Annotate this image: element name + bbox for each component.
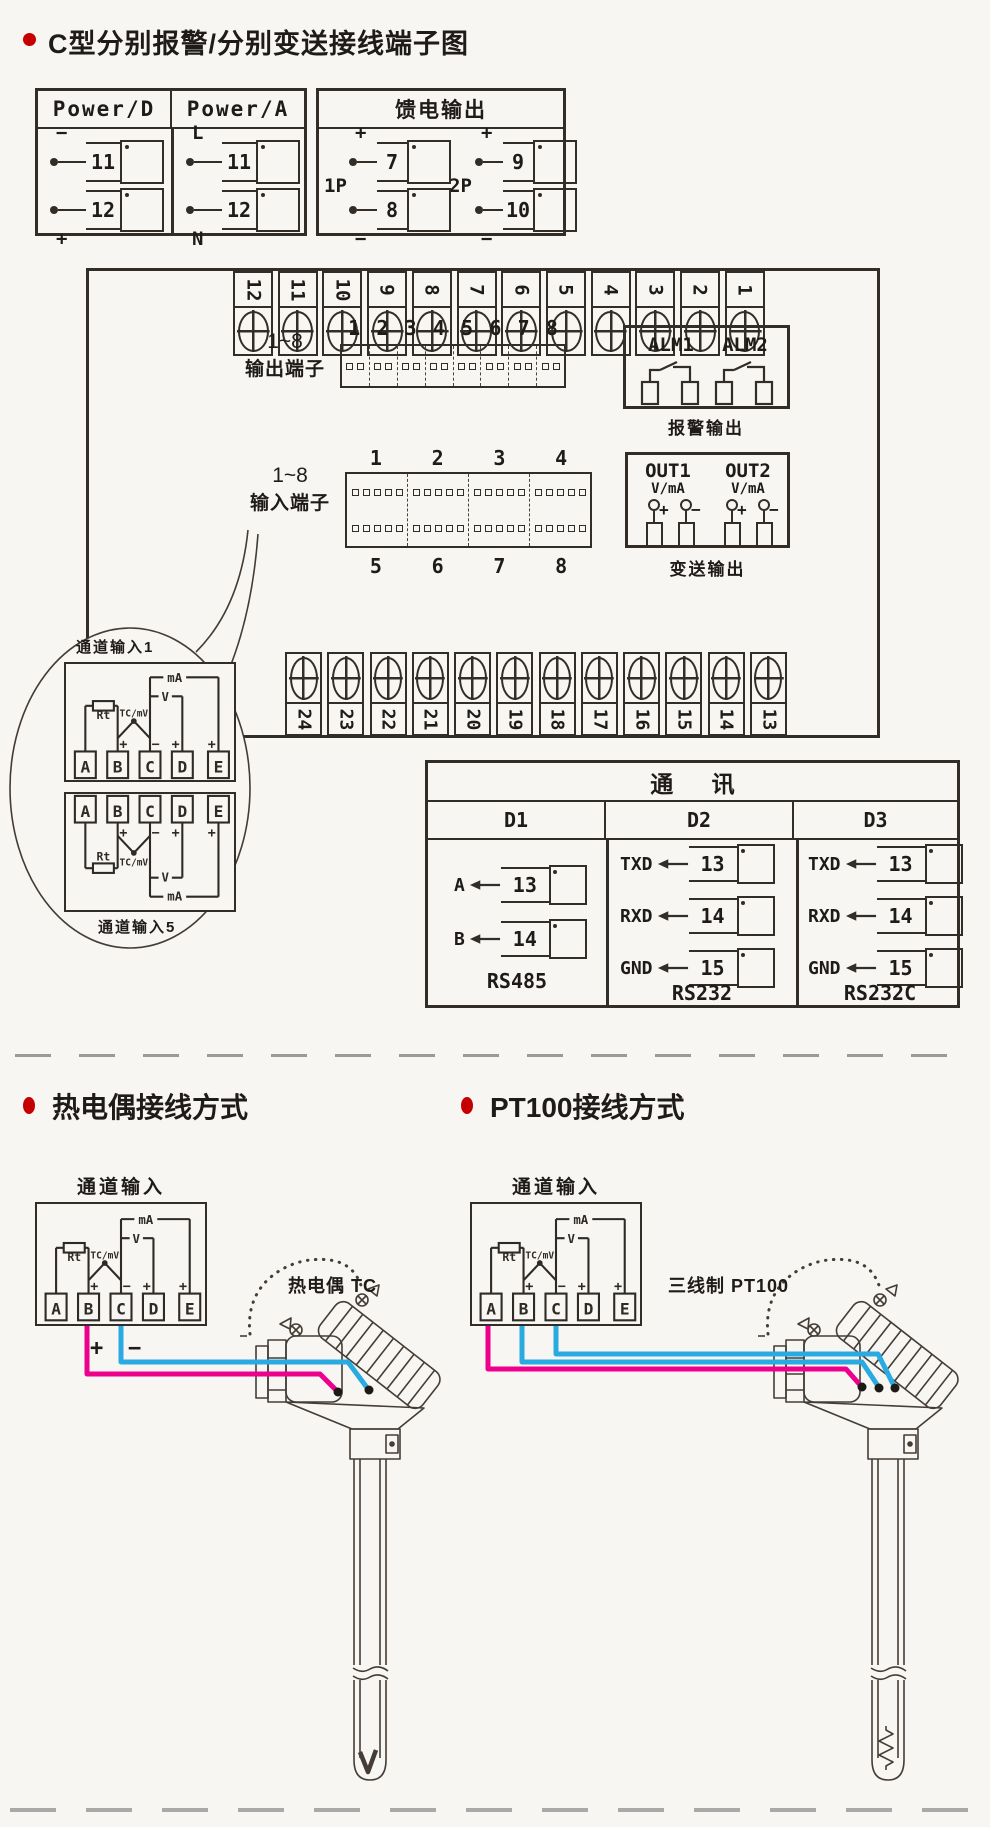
svg-text:mA: mA xyxy=(573,1212,588,1227)
arrow-left-icon xyxy=(469,879,501,891)
terminal-cell: 19 xyxy=(496,652,533,736)
screw-terminal-icon xyxy=(668,655,699,701)
rs232-caption: RS232 xyxy=(672,981,732,1005)
feed-terminal-9: + 9 xyxy=(475,139,577,185)
svg-text:+: + xyxy=(179,1280,187,1295)
svg-text:+: + xyxy=(208,826,216,841)
pt100-channel-input-box: Rt TC/mV V mA + − + + A B C D E xyxy=(470,1202,642,1326)
communication-title: 通 讯 xyxy=(428,763,957,802)
svg-text:+: + xyxy=(208,738,216,753)
thermocouple-section-heading: 热电偶接线方式 xyxy=(52,1086,248,1126)
svg-text:A: A xyxy=(80,802,90,821)
screw-terminal-icon xyxy=(288,655,319,701)
svg-text:−: − xyxy=(152,738,160,753)
group-2p-label: 2P xyxy=(449,175,472,197)
svg-text:B: B xyxy=(113,757,123,776)
svg-text:E: E xyxy=(214,757,224,776)
svg-text:B: B xyxy=(113,802,123,821)
svg-text:+: + xyxy=(172,826,180,841)
svg-text:+: + xyxy=(578,1280,586,1295)
power-d-terminal-11: − 11 xyxy=(50,139,164,185)
svg-text:D: D xyxy=(584,1300,594,1319)
svg-text:TC/mV: TC/mV xyxy=(120,857,149,868)
alarm-output-caption: 报警输出 xyxy=(640,414,772,439)
wire-dot-icon xyxy=(186,158,194,166)
screw-terminal-icon xyxy=(626,655,657,701)
rs485-terminal-a: A 13 xyxy=(454,866,587,904)
svg-text:A: A xyxy=(51,1300,61,1319)
column-divider xyxy=(606,840,609,1005)
channel-input-1-box: Rt TC/mV V mA + − + + A B C D E xyxy=(64,662,236,782)
out1-minus-terminal: − xyxy=(674,499,698,548)
terminal-cell: 18 xyxy=(539,652,576,736)
communication-table: 通 讯 D1 D2 D3 A 13 B 14 RS485 TXD 13 xyxy=(425,760,960,1008)
svg-text:TC/mV: TC/mV xyxy=(120,708,149,719)
input-numbers-bottom: 5678 xyxy=(345,554,592,578)
svg-text:+: + xyxy=(172,738,180,753)
svg-text:+: + xyxy=(90,1280,98,1295)
terminal-cell: 24 xyxy=(285,652,322,736)
thermocouple-junction-mark xyxy=(360,1750,376,1772)
svg-text:E: E xyxy=(214,802,224,821)
bullet-icon xyxy=(23,33,36,46)
svg-text:mA: mA xyxy=(138,1212,153,1227)
wire-dot-icon xyxy=(475,206,483,214)
arrow-left-icon xyxy=(657,858,689,870)
tc-channel-input-box: Rt TC/mV V mA + − + + A B C D E xyxy=(35,1202,207,1326)
input-numbers-top: 1234 xyxy=(345,446,592,470)
screw-terminal-icon xyxy=(415,655,446,701)
terminal-cell: 16 xyxy=(623,652,660,736)
column-divider xyxy=(796,840,799,1005)
power-a-terminal-11: L 11 xyxy=(186,139,300,185)
output-numbers: 12345678 xyxy=(340,316,566,340)
output-connector-strip xyxy=(340,344,566,388)
svg-text:D: D xyxy=(177,802,187,821)
feed-terminal-10: − 10 xyxy=(475,187,577,233)
svg-text:B: B xyxy=(519,1300,529,1319)
screw-terminal-icon xyxy=(330,655,361,701)
svg-text:D: D xyxy=(177,757,187,776)
svg-text:C: C xyxy=(551,1300,561,1319)
svg-text:A: A xyxy=(80,757,90,776)
svg-text:V: V xyxy=(161,870,169,884)
out1-plus-terminal: + xyxy=(642,499,666,548)
section-divider xyxy=(15,1054,975,1057)
svg-text:Rt: Rt xyxy=(67,1250,81,1264)
svg-text:D: D xyxy=(149,1300,159,1319)
page-title: C型分别报警/分别变送接线端子图 xyxy=(48,22,469,61)
relay-contact-icon xyxy=(713,358,775,406)
svg-text:V: V xyxy=(161,690,169,704)
svg-text:E: E xyxy=(185,1300,195,1319)
svg-text:C: C xyxy=(116,1300,126,1319)
svg-text:+: + xyxy=(119,826,127,841)
pt100-section-heading: PT100接线方式 xyxy=(490,1086,685,1126)
svg-text:mA: mA xyxy=(167,671,182,685)
pt100-probe-label: 三线制 PT100 xyxy=(668,1272,789,1298)
wire-dot-icon xyxy=(50,206,58,214)
wiring-diagram-page: C型分别报警/分别变送接线端子图 Power/D Power/A − 11 + … xyxy=(0,0,990,1827)
svg-text:B: B xyxy=(84,1300,94,1319)
svg-text:mA: mA xyxy=(167,889,182,903)
rs232c-caption: RS232C xyxy=(844,981,916,1005)
column-d3-header: D3 xyxy=(794,802,957,838)
feed-terminal-8: − 8 xyxy=(349,187,451,233)
input-connector-strip xyxy=(345,472,592,548)
power-d-terminal-12: + 12 xyxy=(50,187,164,233)
channel-wiring-diagram-mirrored: Rt TC/mV V mA + − + + A B C D E xyxy=(66,794,234,910)
terminal-cell: 23 xyxy=(327,652,364,736)
channel-input-5-box: Rt TC/mV V mA + − + + A B C D E xyxy=(64,792,236,912)
column-d2-header: D2 xyxy=(606,802,794,838)
wire-dot-icon xyxy=(186,206,194,214)
svg-text:Rt: Rt xyxy=(97,850,111,864)
svg-text:+: + xyxy=(525,1280,533,1295)
arrow-left-icon xyxy=(845,962,877,974)
svg-text:+: + xyxy=(119,738,127,753)
screw-terminal-icon xyxy=(711,655,742,701)
terminal-cell: 14 xyxy=(708,652,745,736)
out2-minus-terminal: − xyxy=(752,499,776,548)
svg-text:Rt: Rt xyxy=(502,1250,516,1264)
terminal-cell: 21 xyxy=(412,652,449,736)
alarm-output-box: ALM1 ALM2 xyxy=(623,325,790,409)
output-terminals-label: 1~8 输出端子 xyxy=(237,330,333,381)
arrow-left-icon xyxy=(657,962,689,974)
column-d1-header: D1 xyxy=(428,802,606,838)
channel-wiring-diagram: Rt TC/mV V mA + − + + A B C D E xyxy=(66,664,234,780)
svg-text:V: V xyxy=(568,1231,576,1246)
svg-text:−: − xyxy=(152,826,160,841)
transmit-output-box: OUT1 OUT2 V/mA V/mA + − + − xyxy=(625,452,790,548)
svg-text:Rt: Rt xyxy=(97,708,111,722)
screw-terminal-icon xyxy=(542,655,573,701)
arrow-left-icon xyxy=(469,933,501,945)
svg-text:−: − xyxy=(123,1280,131,1295)
arrow-left-icon xyxy=(845,910,877,922)
bullet-icon xyxy=(461,1097,473,1114)
terminal-cell: 22 xyxy=(370,652,407,736)
svg-text:C: C xyxy=(145,757,155,776)
page-bottom-divider xyxy=(10,1808,985,1812)
svg-text:TC/mV: TC/mV xyxy=(525,1250,554,1261)
channel-wiring-diagram: Rt TC/mV V mA + − + + A B C D E xyxy=(37,1204,205,1324)
rs232-terminal-rxd: RXD 14 xyxy=(620,897,775,935)
svg-text:A: A xyxy=(486,1300,496,1319)
wire-dot-icon xyxy=(50,158,58,166)
pt100-probe-illustration xyxy=(758,1259,962,1780)
rs485-caption: RS485 xyxy=(487,969,547,993)
bottom-terminal-strip: 24 23 22 21 20 19 18 17 16 15 14 13 xyxy=(285,652,787,736)
out2-plus-terminal: + xyxy=(720,499,744,548)
relay-contact-icon xyxy=(639,358,701,406)
channel-input-5-label: 通道输入5 xyxy=(98,916,176,937)
svg-text:+: + xyxy=(614,1280,622,1295)
tc-wire-minus-sign: − xyxy=(128,1336,141,1361)
head-screw-icon xyxy=(798,1318,820,1336)
bullet-icon xyxy=(23,1097,35,1114)
terminal-cell: 15 xyxy=(665,652,702,736)
feed-output-box: 馈电输出 1P 2P + 7 − 8 + 9 − 10 xyxy=(316,88,566,236)
power-a-terminal-12: N 12 xyxy=(186,187,300,233)
screw-terminal-icon xyxy=(753,655,784,701)
pt100-channel-input-label: 通道输入 xyxy=(491,1172,621,1199)
input-terminals-label: 1~8 输入端子 xyxy=(240,464,340,515)
feed-terminal-7: + 7 xyxy=(349,139,451,185)
svg-text:V: V xyxy=(133,1231,141,1246)
pt100-element-mark xyxy=(879,1726,893,1770)
terminal-cell: 20 xyxy=(454,652,491,736)
power-terminal-box: Power/D Power/A − 11 + 12 L 11 N 12 xyxy=(35,88,307,236)
wire-dot-icon xyxy=(349,158,357,166)
rs485-terminal-b: B 14 xyxy=(454,920,587,958)
screw-terminal-icon xyxy=(584,655,615,701)
channel-wiring-diagram: Rt TC/mV V mA + − + + A B C D E xyxy=(472,1204,640,1324)
channel-input-1-label: 通道输入1 xyxy=(76,636,154,657)
rs232c-terminal-rxd: RXD 14 xyxy=(808,897,963,935)
transmit-output-caption: 变送输出 xyxy=(645,555,770,580)
screw-terminal-icon xyxy=(499,655,530,701)
thermocouple-probe-illustration xyxy=(240,1259,444,1780)
head-screw-icon xyxy=(280,1318,302,1336)
svg-text:TC/mV: TC/mV xyxy=(90,1250,119,1261)
svg-text:+: + xyxy=(143,1280,151,1295)
wire-dot-icon xyxy=(349,206,357,214)
svg-text:E: E xyxy=(620,1300,630,1319)
arrow-left-icon xyxy=(845,858,877,870)
tc-channel-input-label: 通道输入 xyxy=(56,1172,186,1199)
head-screw-icon xyxy=(874,1285,897,1306)
wire-dot-icon xyxy=(475,158,483,166)
group-1p-label: 1P xyxy=(324,175,347,197)
tc-wire-plus-sign: + xyxy=(90,1336,103,1361)
thermocouple-probe-label: 热电偶 TC xyxy=(288,1272,377,1298)
power-divider xyxy=(171,129,174,236)
rs232-terminal-txd: TXD 13 xyxy=(620,845,775,883)
terminal-cell: 17 xyxy=(581,652,618,736)
rs232c-terminal-txd: TXD 13 xyxy=(808,845,963,883)
terminal-cell: 13 xyxy=(750,652,787,736)
svg-text:C: C xyxy=(145,802,155,821)
arrow-left-icon xyxy=(657,910,689,922)
screw-terminal-icon xyxy=(373,655,404,701)
screw-terminal-icon xyxy=(457,655,488,701)
svg-text:−: − xyxy=(558,1280,566,1295)
